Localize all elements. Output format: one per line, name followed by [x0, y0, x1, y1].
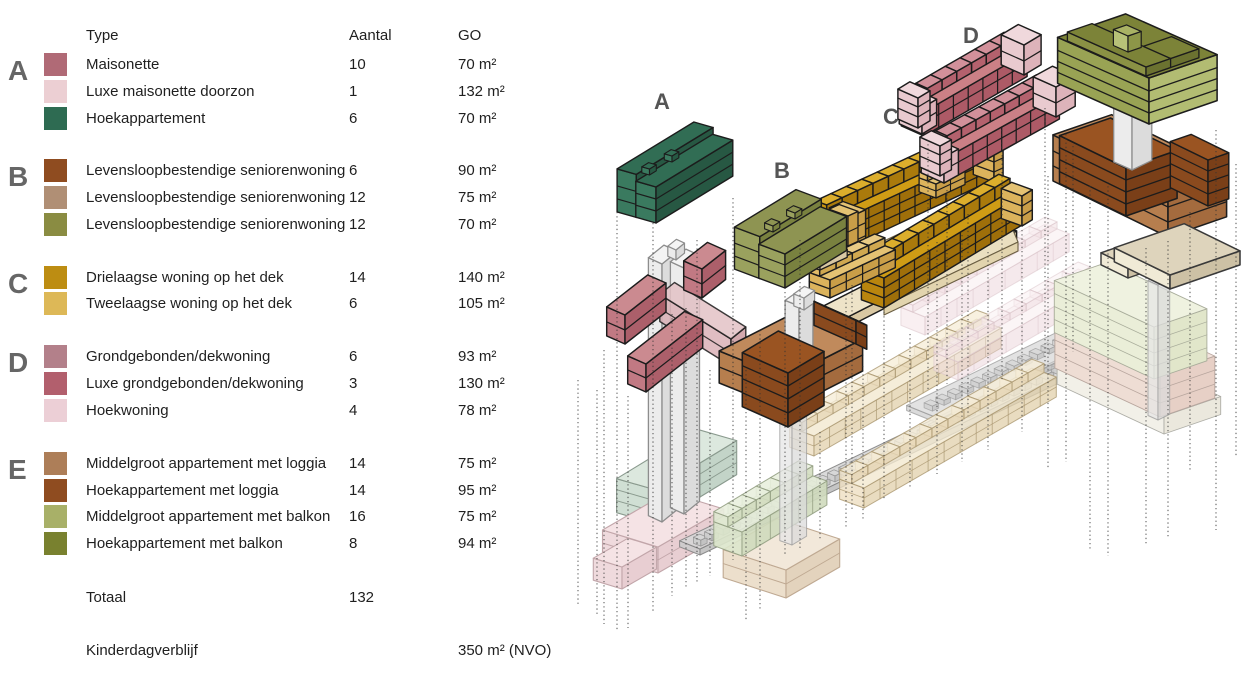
- svg-text:D: D: [963, 23, 979, 48]
- svg-text:C: C: [883, 104, 899, 129]
- svg-text:B: B: [774, 158, 790, 183]
- svg-text:A: A: [654, 89, 670, 114]
